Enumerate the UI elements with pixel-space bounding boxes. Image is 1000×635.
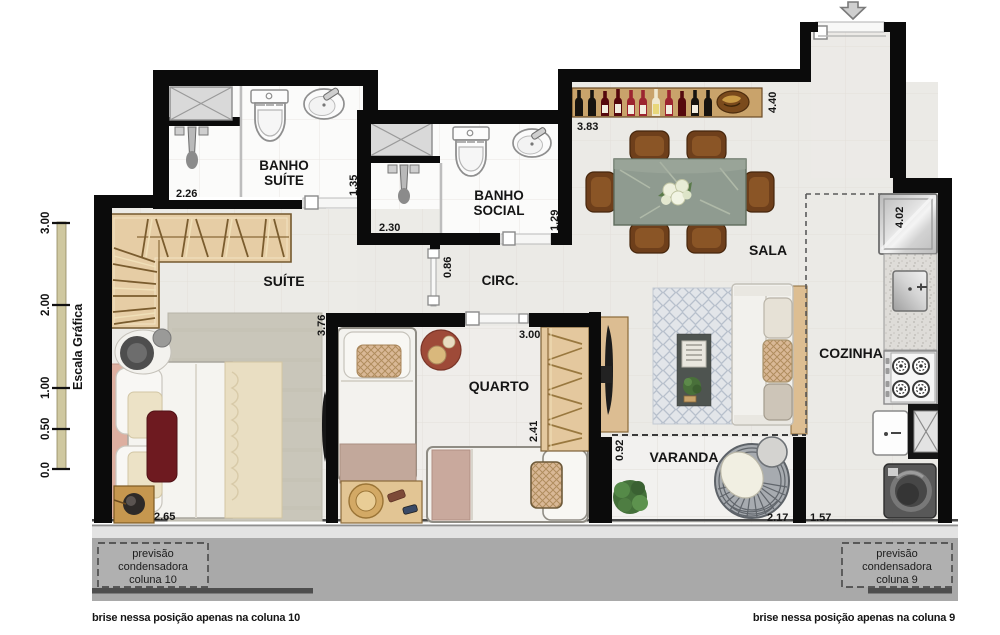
svg-text:brise nessa posição apenas na: brise nessa posição apenas na coluna 10 [92, 612, 300, 624]
svg-text:coluna 9: coluna 9 [876, 574, 918, 586]
svg-text:1.35: 1.35 [348, 175, 360, 196]
svg-text:SUÍTE: SUÍTE [264, 173, 304, 188]
svg-text:1.29: 1.29 [549, 210, 561, 231]
svg-text:3.76: 3.76 [316, 315, 328, 336]
svg-text:Escala Gráfica: Escala Gráfica [71, 303, 85, 390]
svg-text:condensadora: condensadora [118, 561, 189, 573]
svg-text:BANHO: BANHO [474, 188, 524, 203]
svg-text:0.86: 0.86 [442, 257, 454, 278]
svg-text:1.57: 1.57 [810, 512, 831, 524]
svg-text:2.26: 2.26 [176, 188, 197, 200]
svg-text:SALA: SALA [749, 242, 787, 258]
svg-text:2.17: 2.17 [767, 512, 788, 524]
svg-text:2.65: 2.65 [154, 511, 175, 523]
svg-text:4.02: 4.02 [894, 207, 906, 228]
svg-text:previsão: previsão [132, 548, 174, 560]
svg-text:condensadora: condensadora [862, 561, 933, 573]
svg-text:0.50: 0.50 [40, 418, 52, 440]
svg-text:3.00: 3.00 [519, 329, 540, 341]
svg-text:CIRC.: CIRC. [482, 273, 519, 288]
svg-text:COZINHA: COZINHA [819, 345, 883, 361]
svg-text:1.00: 1.00 [40, 377, 52, 399]
svg-text:4.40: 4.40 [767, 92, 779, 113]
svg-text:coluna 10: coluna 10 [129, 574, 177, 586]
svg-text:2.30: 2.30 [379, 222, 400, 234]
svg-text:SUÍTE: SUÍTE [263, 273, 304, 289]
svg-text:3.00: 3.00 [40, 212, 52, 234]
svg-text:BANHO: BANHO [259, 158, 309, 173]
svg-text:0.92: 0.92 [614, 440, 626, 461]
svg-text:SOCIAL: SOCIAL [473, 203, 524, 218]
svg-text:2.00: 2.00 [40, 294, 52, 316]
svg-text:VARANDA: VARANDA [650, 449, 719, 465]
svg-text:brise nessa posição apenas na: brise nessa posição apenas na coluna 9 [753, 612, 955, 624]
svg-text:0.0: 0.0 [40, 462, 52, 478]
svg-text:QUARTO: QUARTO [469, 378, 530, 394]
svg-text:3.83: 3.83 [577, 121, 598, 133]
svg-text:2.41: 2.41 [528, 421, 540, 442]
svg-text:previsão: previsão [876, 548, 918, 560]
